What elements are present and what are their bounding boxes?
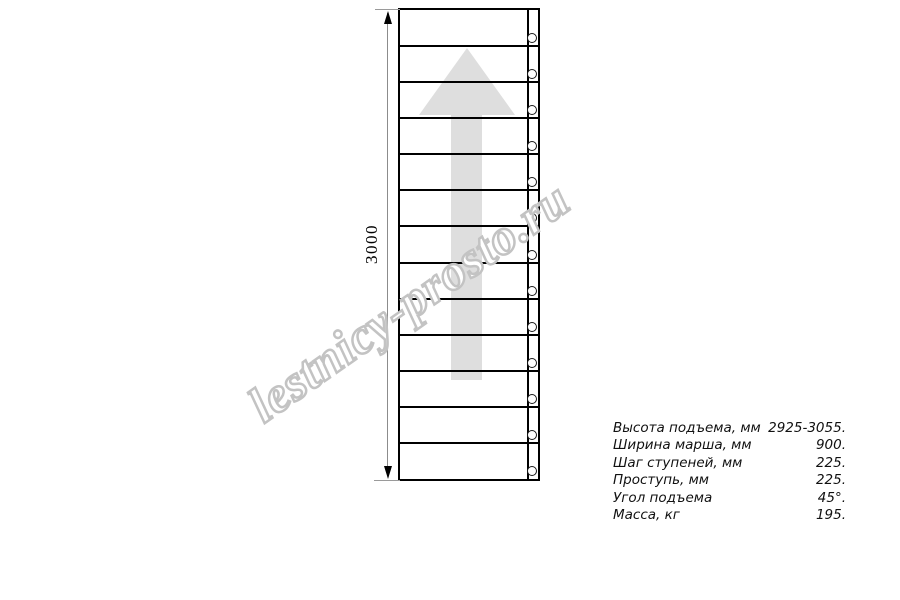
step-divider-line <box>400 81 538 83</box>
bolt-hole-circle <box>527 141 537 151</box>
spec-label: Угол подъема <box>613 490 712 507</box>
spec-row: Проступь, мм 225. <box>613 472 846 489</box>
dimension-label: 3000 <box>362 212 382 276</box>
bolt-hole-circle <box>527 394 537 404</box>
step-divider-line <box>400 406 538 408</box>
spec-value: 225. <box>816 455 846 472</box>
specs-table: Высота подъема, мм 2925-3055. Ширина мар… <box>613 420 846 524</box>
step-divider-line <box>400 153 538 155</box>
spec-value: 45°. <box>818 490 846 507</box>
spec-row: Шаг ступеней, мм 225. <box>613 455 846 472</box>
spec-label: Шаг ступеней, мм <box>613 455 742 472</box>
bolt-hole-circle <box>527 430 537 440</box>
bolt-hole-circle <box>527 33 537 43</box>
step-divider-line <box>400 370 538 372</box>
dimension-arrowhead-top <box>384 11 392 24</box>
extension-line-top <box>375 9 400 10</box>
step-divider-line <box>400 45 538 47</box>
spec-row: Ширина марша, мм 900. <box>613 437 846 454</box>
spec-label: Масса, кг <box>613 507 680 524</box>
spec-value: 195. <box>816 507 846 524</box>
bolt-hole-circle <box>527 69 537 79</box>
step-divider-line <box>400 442 538 444</box>
spec-value: 2925-3055. <box>768 420 846 437</box>
extension-line-bottom <box>374 480 400 481</box>
spec-row: Угол подъема 45°. <box>613 490 846 507</box>
step-divider-line <box>400 117 538 119</box>
bolt-hole-circle <box>527 358 537 368</box>
bolt-hole-circle <box>527 286 537 296</box>
spec-label: Проступь, мм <box>613 472 709 489</box>
page-canvas: 3000 lestnicy-prosto.ru Высота подъема, … <box>0 0 900 600</box>
spec-value: 900. <box>816 437 846 454</box>
spec-row: Масса, кг 195. <box>613 507 846 524</box>
spec-label: Высота подъема, мм <box>613 420 761 437</box>
dimension-arrowhead-bottom <box>384 466 392 479</box>
spec-row: Высота подъема, мм 2925-3055. <box>613 420 846 437</box>
bolt-hole-circle <box>527 466 537 476</box>
spec-label: Ширина марша, мм <box>613 437 752 454</box>
bolt-hole-circle <box>527 105 537 115</box>
spec-value: 225. <box>816 472 846 489</box>
bolt-hole-circle <box>527 322 537 332</box>
dimension-line <box>387 13 388 467</box>
